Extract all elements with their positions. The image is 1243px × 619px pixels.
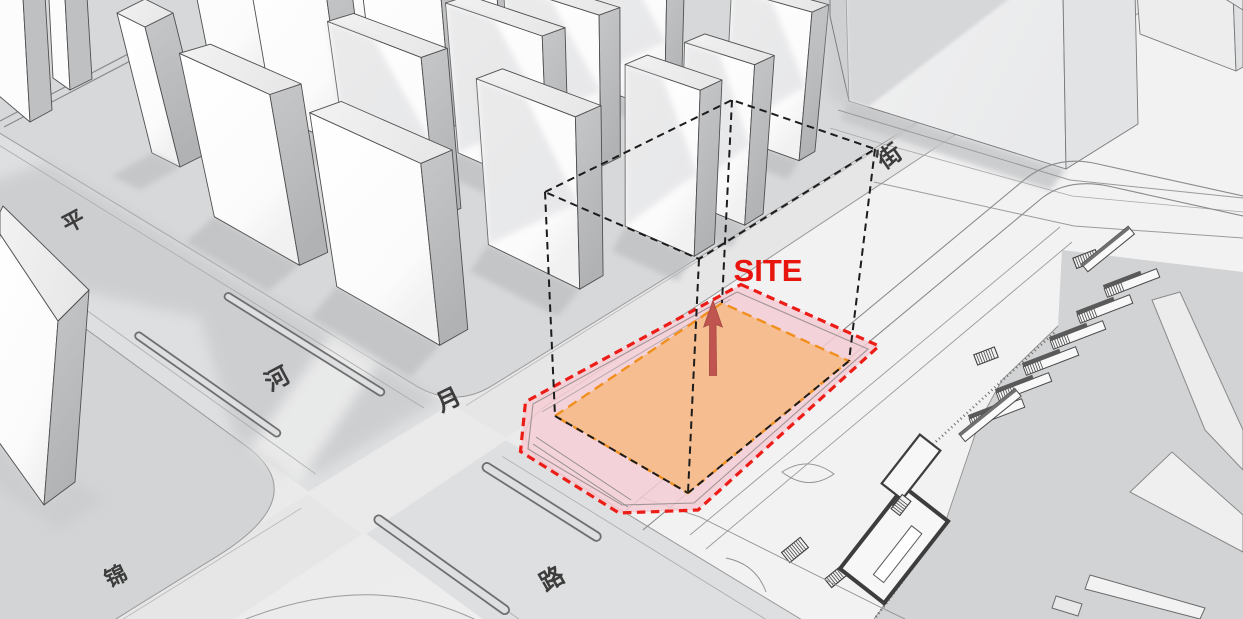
svg-text:SITE: SITE bbox=[734, 253, 803, 288]
